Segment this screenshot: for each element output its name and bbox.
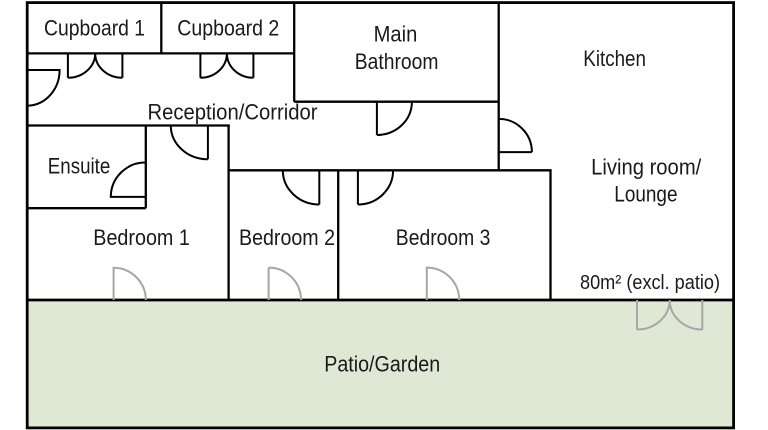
svg-text:Living room/: Living room/ — [591, 155, 702, 180]
svg-text:Reception/Corridor: Reception/Corridor — [148, 100, 318, 125]
svg-text:Kitchen: Kitchen — [583, 46, 646, 71]
svg-text:80m² (excl. patio): 80m² (excl. patio) — [580, 272, 720, 294]
svg-text:Ensuite: Ensuite — [48, 154, 111, 179]
svg-text:Main: Main — [374, 22, 418, 47]
svg-text:Bedroom 3: Bedroom 3 — [396, 225, 491, 250]
svg-text:Bedroom 2: Bedroom 2 — [239, 225, 335, 250]
svg-text:Bedroom 1: Bedroom 1 — [93, 225, 190, 250]
svg-text:Patio/Garden: Patio/Garden — [324, 352, 440, 377]
svg-text:Cupboard 1: Cupboard 1 — [44, 15, 145, 40]
svg-text:Bathroom: Bathroom — [355, 49, 439, 74]
svg-text:Lounge: Lounge — [614, 182, 677, 207]
svg-text:Cupboard 2: Cupboard 2 — [177, 15, 279, 40]
